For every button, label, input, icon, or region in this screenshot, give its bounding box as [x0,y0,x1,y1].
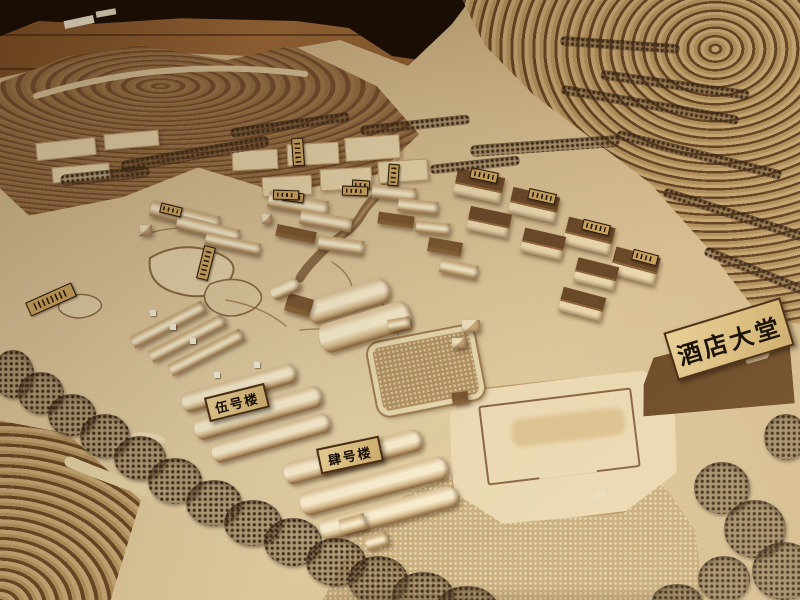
small-sign [273,190,299,201]
model-building [451,391,469,405]
model-building [140,225,152,235]
model-photo: 酒店大堂 伍号楼 肆号楼 [0,0,800,600]
small-sign-vertical [291,138,305,167]
chimney [170,324,176,330]
building-plot [377,158,428,183]
model-building [262,214,272,224]
tree-cluster [698,556,750,600]
building-plot [344,134,401,162]
tree-cluster [764,414,800,460]
pond-small [204,279,261,316]
model-building [462,320,480,332]
chimney [214,372,220,378]
model-building [452,338,466,348]
small-sign-vertical [387,164,400,187]
chimney [254,362,260,368]
hill-road [36,69,305,96]
small-sign [342,186,368,197]
chimney [150,310,156,316]
chimney [190,338,196,344]
